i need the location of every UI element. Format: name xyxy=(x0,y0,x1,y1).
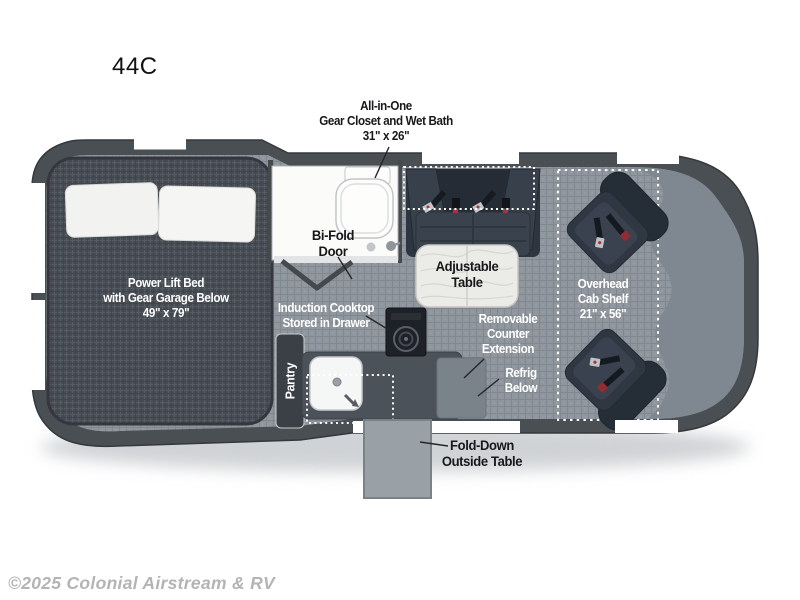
cooktop-label: Induction Cooktop Stored in Drawer xyxy=(278,301,374,331)
kitchen-sink xyxy=(310,357,362,410)
bench-sofa xyxy=(404,167,540,257)
window-rear-left-upper xyxy=(31,183,45,293)
bifold-door-label: Bi-Fold Door xyxy=(312,227,354,259)
pantry-label: Pantry xyxy=(283,363,298,400)
pillow-right xyxy=(158,186,255,242)
outside-table-label: Fold-Down Outside Table xyxy=(442,437,522,469)
counter-extension xyxy=(437,358,486,418)
counter-extension-label: Removable Counter Extension xyxy=(479,312,538,357)
bed-label: Power Lift Bed with Gear Garage Below 49… xyxy=(103,276,229,321)
window-front-top xyxy=(617,151,679,164)
window-rear-left-lower xyxy=(31,300,45,390)
bath-drain xyxy=(367,243,376,252)
refrig-label: Refrig Below xyxy=(505,366,537,396)
plan-code: 44C xyxy=(112,53,158,81)
induction-cooktop xyxy=(386,308,426,356)
closet-label: All-in-One Gear Closet and Wet Bath 31" … xyxy=(319,99,453,144)
fold-down-outside-table xyxy=(364,420,431,498)
window-rear-top xyxy=(134,139,186,150)
cab-door-gap xyxy=(615,420,678,433)
pillow-left xyxy=(65,182,159,237)
window-mid-top xyxy=(422,151,519,164)
floorplan-page: 44C All-in-One Gear Closet and Wet Bath … xyxy=(0,0,800,600)
cab-shelf-label: Overhead Cab Shelf 21" x 56" xyxy=(578,277,629,322)
watermark: ©2025 Colonial Airstream & RV xyxy=(8,573,275,594)
adjustable-table-label: Adjustable Table xyxy=(436,258,499,290)
